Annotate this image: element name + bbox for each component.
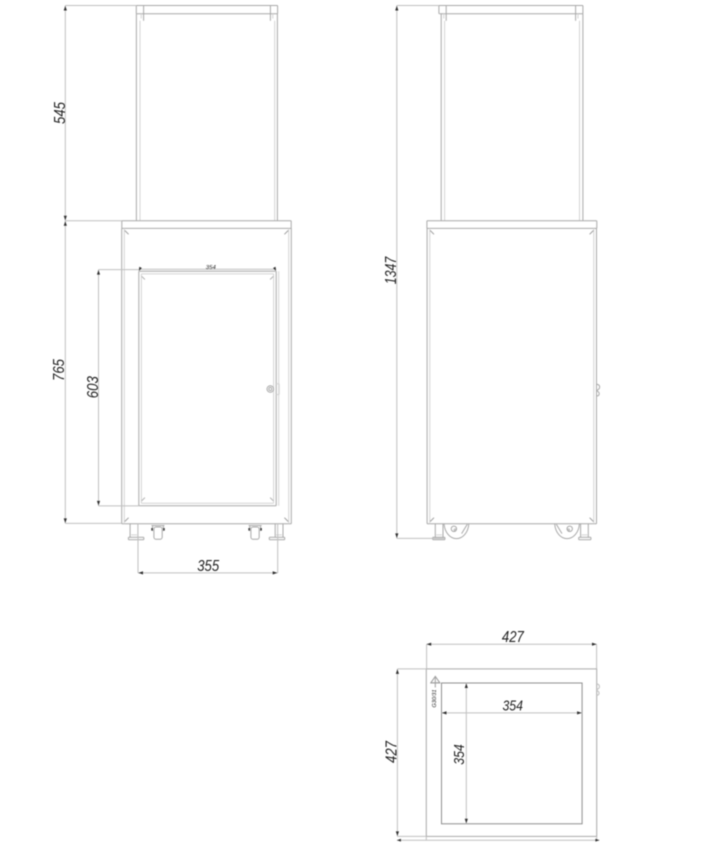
svg-text:1347: 1347 — [383, 256, 400, 284]
svg-text:545: 545 — [52, 102, 69, 124]
svg-text:603: 603 — [85, 376, 102, 398]
svg-text:G30/31: G30/31 — [432, 689, 438, 707]
svg-text:355: 355 — [197, 558, 219, 575]
svg-text:354: 354 — [451, 744, 468, 765]
svg-text:427: 427 — [502, 629, 525, 646]
svg-text:765: 765 — [51, 359, 68, 381]
svg-text:427: 427 — [384, 740, 401, 763]
svg-text:354: 354 — [206, 265, 216, 271]
svg-text:354: 354 — [502, 698, 523, 715]
